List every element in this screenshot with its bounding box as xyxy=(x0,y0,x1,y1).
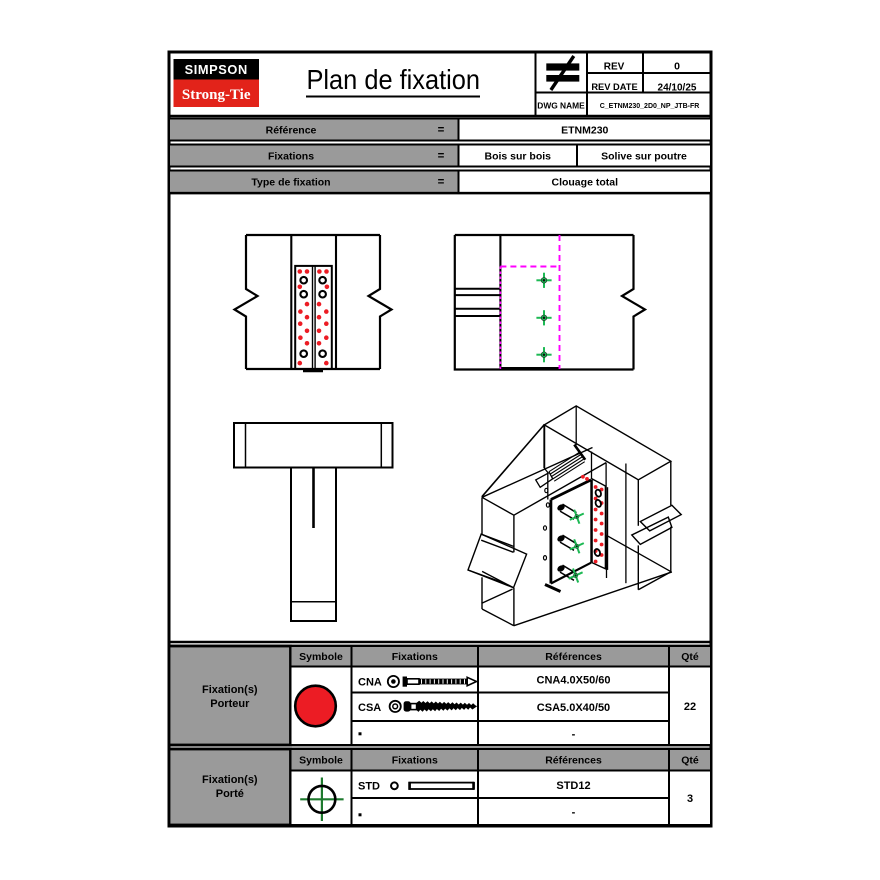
svg-text:22: 22 xyxy=(684,701,696,713)
svg-text:ETNM230: ETNM230 xyxy=(561,124,608,136)
svg-text:REV: REV xyxy=(604,62,625,73)
svg-text:REV DATE: REV DATE xyxy=(591,82,637,92)
svg-text:Qté: Qté xyxy=(681,651,699,663)
svg-text:CNA4.0X50/60: CNA4.0X50/60 xyxy=(537,675,611,687)
svg-text:Fixations: Fixations xyxy=(392,651,438,663)
svg-text:STD: STD xyxy=(358,781,380,793)
svg-text:Fixation(s): Fixation(s) xyxy=(202,774,258,786)
svg-text:Bois sur bois: Bois sur bois xyxy=(484,150,551,162)
svg-text:3: 3 xyxy=(687,793,693,805)
svg-text:Porté: Porté xyxy=(216,788,244,800)
svg-text:Strong-Tie: Strong-Tie xyxy=(182,87,251,103)
svg-text:=: = xyxy=(438,124,445,136)
svg-text:Clouage total: Clouage total xyxy=(551,177,618,189)
svg-text:SIMPSON: SIMPSON xyxy=(185,62,248,77)
svg-text:Symbole: Symbole xyxy=(299,755,343,767)
svg-text:Qté: Qté xyxy=(681,755,699,767)
svg-text:Référence: Référence xyxy=(266,124,317,136)
svg-text:-: - xyxy=(572,807,576,819)
svg-text:Fixations: Fixations xyxy=(392,755,438,767)
svg-text:Fixation(s): Fixation(s) xyxy=(202,684,258,696)
svg-text:-: - xyxy=(572,729,576,741)
svg-text:0: 0 xyxy=(674,61,680,73)
svg-text:C_ETNM230_2D0_NP_JTB-FR: C_ETNM230_2D0_NP_JTB-FR xyxy=(600,103,700,110)
svg-text:Symbole: Symbole xyxy=(299,651,343,663)
svg-text:Références: Références xyxy=(545,651,602,663)
svg-text:=: = xyxy=(438,150,445,162)
svg-text:Solive sur poutre: Solive sur poutre xyxy=(601,150,687,162)
svg-text:24/10/25: 24/10/25 xyxy=(658,83,697,94)
svg-text:Plan de fixation: Plan de fixation xyxy=(307,64,481,95)
svg-text:CSA: CSA xyxy=(358,702,381,714)
svg-text:CNA: CNA xyxy=(358,677,382,689)
svg-text:=: = xyxy=(438,177,445,189)
svg-text:Porteur: Porteur xyxy=(210,698,250,710)
svg-text:STD12: STD12 xyxy=(556,780,590,792)
svg-text:CSA5.0X40/50: CSA5.0X40/50 xyxy=(537,702,610,714)
svg-text:Références: Références xyxy=(545,755,602,767)
svg-text:DWG NAME: DWG NAME xyxy=(537,100,585,110)
svg-text:Type de fixation: Type de fixation xyxy=(251,177,330,189)
svg-text:Fixations: Fixations xyxy=(268,150,314,162)
